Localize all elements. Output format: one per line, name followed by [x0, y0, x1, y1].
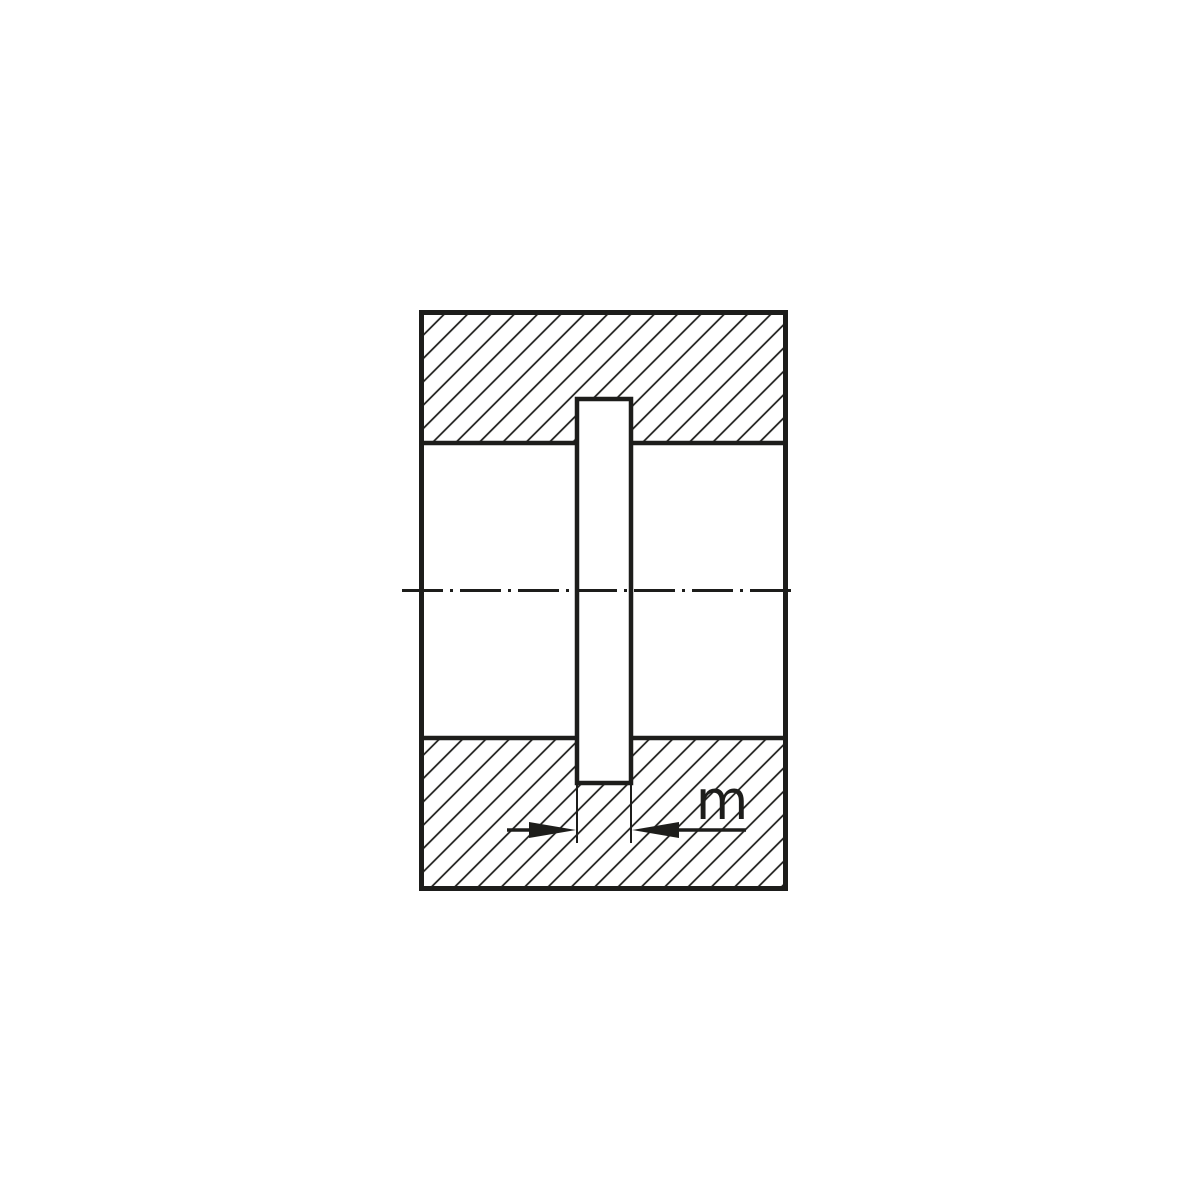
dimension-label: m [696, 769, 749, 832]
page: { "drawing": { "description": "technical… [0, 0, 1200, 1200]
drawing-canvas: m [0, 0, 1200, 1200]
technical-drawing: m [0, 0, 1200, 1200]
